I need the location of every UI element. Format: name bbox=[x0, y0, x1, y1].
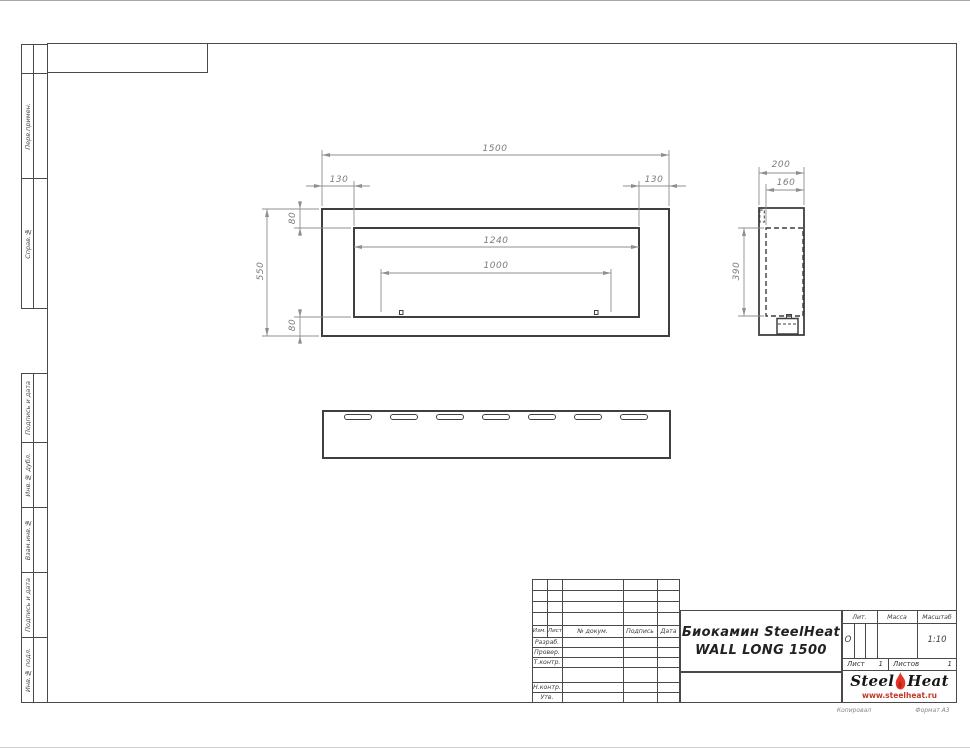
dim-side-inner-depth: 160 bbox=[766, 178, 806, 188]
document-title-line2: WALL LONG 1500 bbox=[695, 643, 827, 658]
mass-label: Масса bbox=[877, 612, 917, 622]
dim-front-opening-width: 1240 bbox=[476, 236, 516, 246]
side-view bbox=[759, 208, 804, 335]
row-approved: Утв. bbox=[532, 693, 562, 702]
scale-value: 1:10 bbox=[917, 632, 957, 648]
col-header-doc: № докум. bbox=[562, 626, 623, 636]
bottom-view bbox=[323, 411, 670, 458]
logo-steel-text: Steel bbox=[850, 672, 894, 690]
dim-front-total-width: 1500 bbox=[475, 144, 515, 154]
format-note: Формат А3 bbox=[905, 707, 960, 714]
grid-line bbox=[854, 623, 855, 658]
grid-line bbox=[865, 623, 866, 658]
grid-line bbox=[562, 579, 563, 703]
col-header-izm: Изм. bbox=[531, 626, 548, 636]
drawing-sheet: Перв.примен. Справ.№ Подпись и дата Инв.… bbox=[0, 0, 970, 749]
logo-heat-text: Heat bbox=[907, 672, 949, 690]
sheet-value: 1 bbox=[879, 660, 883, 668]
dim-front-burner-width: 1000 bbox=[476, 261, 516, 271]
grid-line bbox=[842, 623, 957, 624]
sheets-value: 1 bbox=[948, 660, 952, 668]
dim-front-right-offset: 130 bbox=[639, 175, 669, 185]
row-ncontrol: Н.контр. bbox=[532, 683, 562, 692]
steelheat-logo: Steel Heat bbox=[842, 671, 957, 691]
col-header-list: Лист bbox=[547, 626, 563, 636]
row-developed: Разраб. bbox=[532, 638, 562, 647]
sheets-label: Листов bbox=[893, 660, 919, 668]
scale-label: Масштаб bbox=[917, 612, 957, 622]
col-header-sign: Подпись bbox=[623, 626, 657, 636]
dim-front-total-height: 550 bbox=[256, 251, 266, 291]
copied-note: Копировал bbox=[828, 707, 880, 714]
dim-side-inner-height: 390 bbox=[732, 251, 742, 291]
front-view bbox=[322, 209, 669, 336]
row-checked: Провер. bbox=[532, 648, 562, 657]
lit-value: О bbox=[842, 632, 854, 648]
row-tcontrol: Т.контр. bbox=[532, 658, 562, 667]
logo-url: www.steelheat.ru bbox=[842, 691, 957, 700]
dim-front-top-offset: 80 bbox=[288, 203, 298, 233]
sheet-label: Лист bbox=[847, 660, 865, 668]
grid-line bbox=[657, 579, 658, 703]
dim-front-left-offset: 130 bbox=[324, 175, 354, 185]
col-header-date: Дата bbox=[657, 626, 680, 636]
flame-icon bbox=[893, 672, 908, 691]
document-title-line1: Биокамин SteelHeat bbox=[682, 625, 840, 640]
title-sub-cell bbox=[680, 672, 842, 703]
dim-side-depth: 200 bbox=[761, 160, 801, 170]
lit-label: Лит. bbox=[842, 612, 877, 622]
dim-front-bottom-offset: 80 bbox=[288, 310, 298, 340]
grid-line bbox=[623, 579, 624, 703]
